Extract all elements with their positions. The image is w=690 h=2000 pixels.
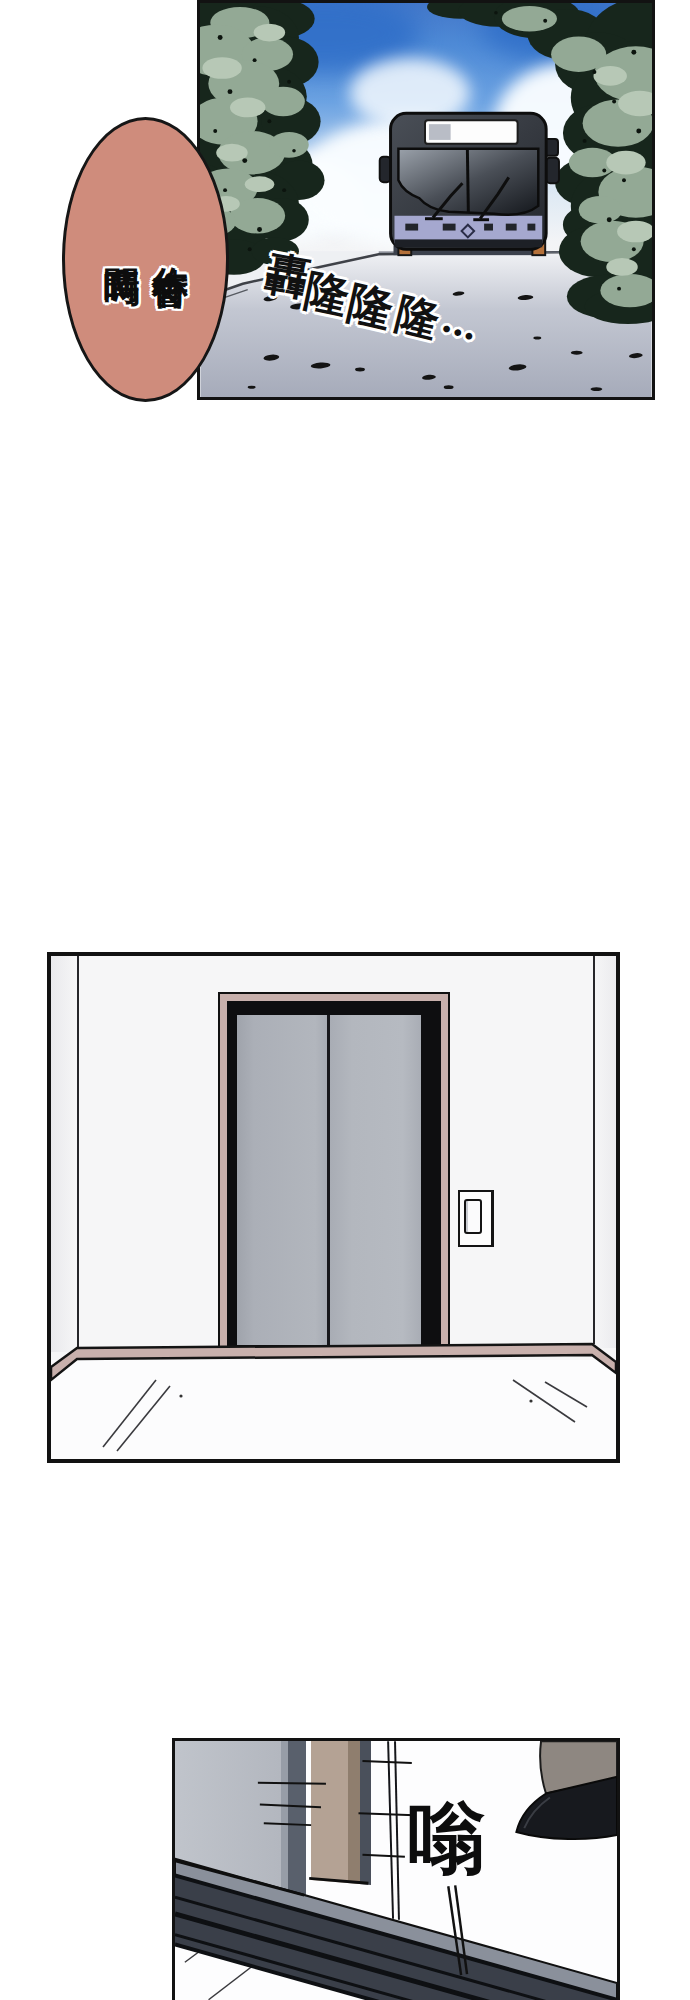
- comic-page: 轟 隆 隆 隆 … 你待會有 時間嗎？: [0, 0, 690, 2000]
- frame-bottom-outline: [309, 1878, 368, 1883]
- bus-sign-inset: [429, 124, 451, 140]
- panel-elevator-hall: [47, 952, 620, 1463]
- person-foot: [516, 1741, 617, 1839]
- far-door-edge-line: [395, 1741, 399, 1920]
- elevator-linework: [51, 956, 616, 1459]
- bus-mirror-right-lower: [546, 158, 559, 184]
- bus-mirror-left: [380, 157, 391, 183]
- speech-bubble-text: 你待會有 時間嗎？: [97, 238, 194, 282]
- panel-bus-scene: 轟 隆 隆 隆 …: [197, 0, 655, 400]
- bus: [380, 113, 559, 255]
- far-door-edge-line: [388, 1741, 393, 1919]
- panel-door-closing: 嗡: [172, 1738, 620, 2000]
- speech-bubble: 你待會有 時間嗎？: [62, 117, 229, 402]
- baseboard: [51, 1344, 616, 1380]
- floor-scuff-lines: [103, 1380, 587, 1451]
- sfx-buzz: 嗡: [408, 1799, 486, 1877]
- door-closing-art: [175, 1741, 617, 2000]
